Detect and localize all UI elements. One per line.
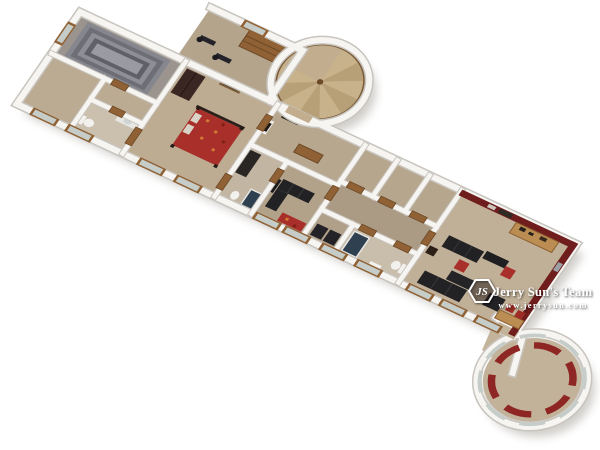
floor-plan-scene: JS Jerry Sun's Team www.jerrysun.com (0, 0, 600, 450)
js-logo-badge: JS (469, 280, 495, 302)
logo-monogram: JS (475, 286, 488, 298)
watermark-website: www.jerrysun.com (498, 300, 587, 310)
watermark-team-name: Jerry Sun's Team (494, 285, 593, 299)
building (0, 0, 600, 444)
floor-plan-render: JS Jerry Sun's Team www.jerrysun.com (0, 0, 600, 450)
